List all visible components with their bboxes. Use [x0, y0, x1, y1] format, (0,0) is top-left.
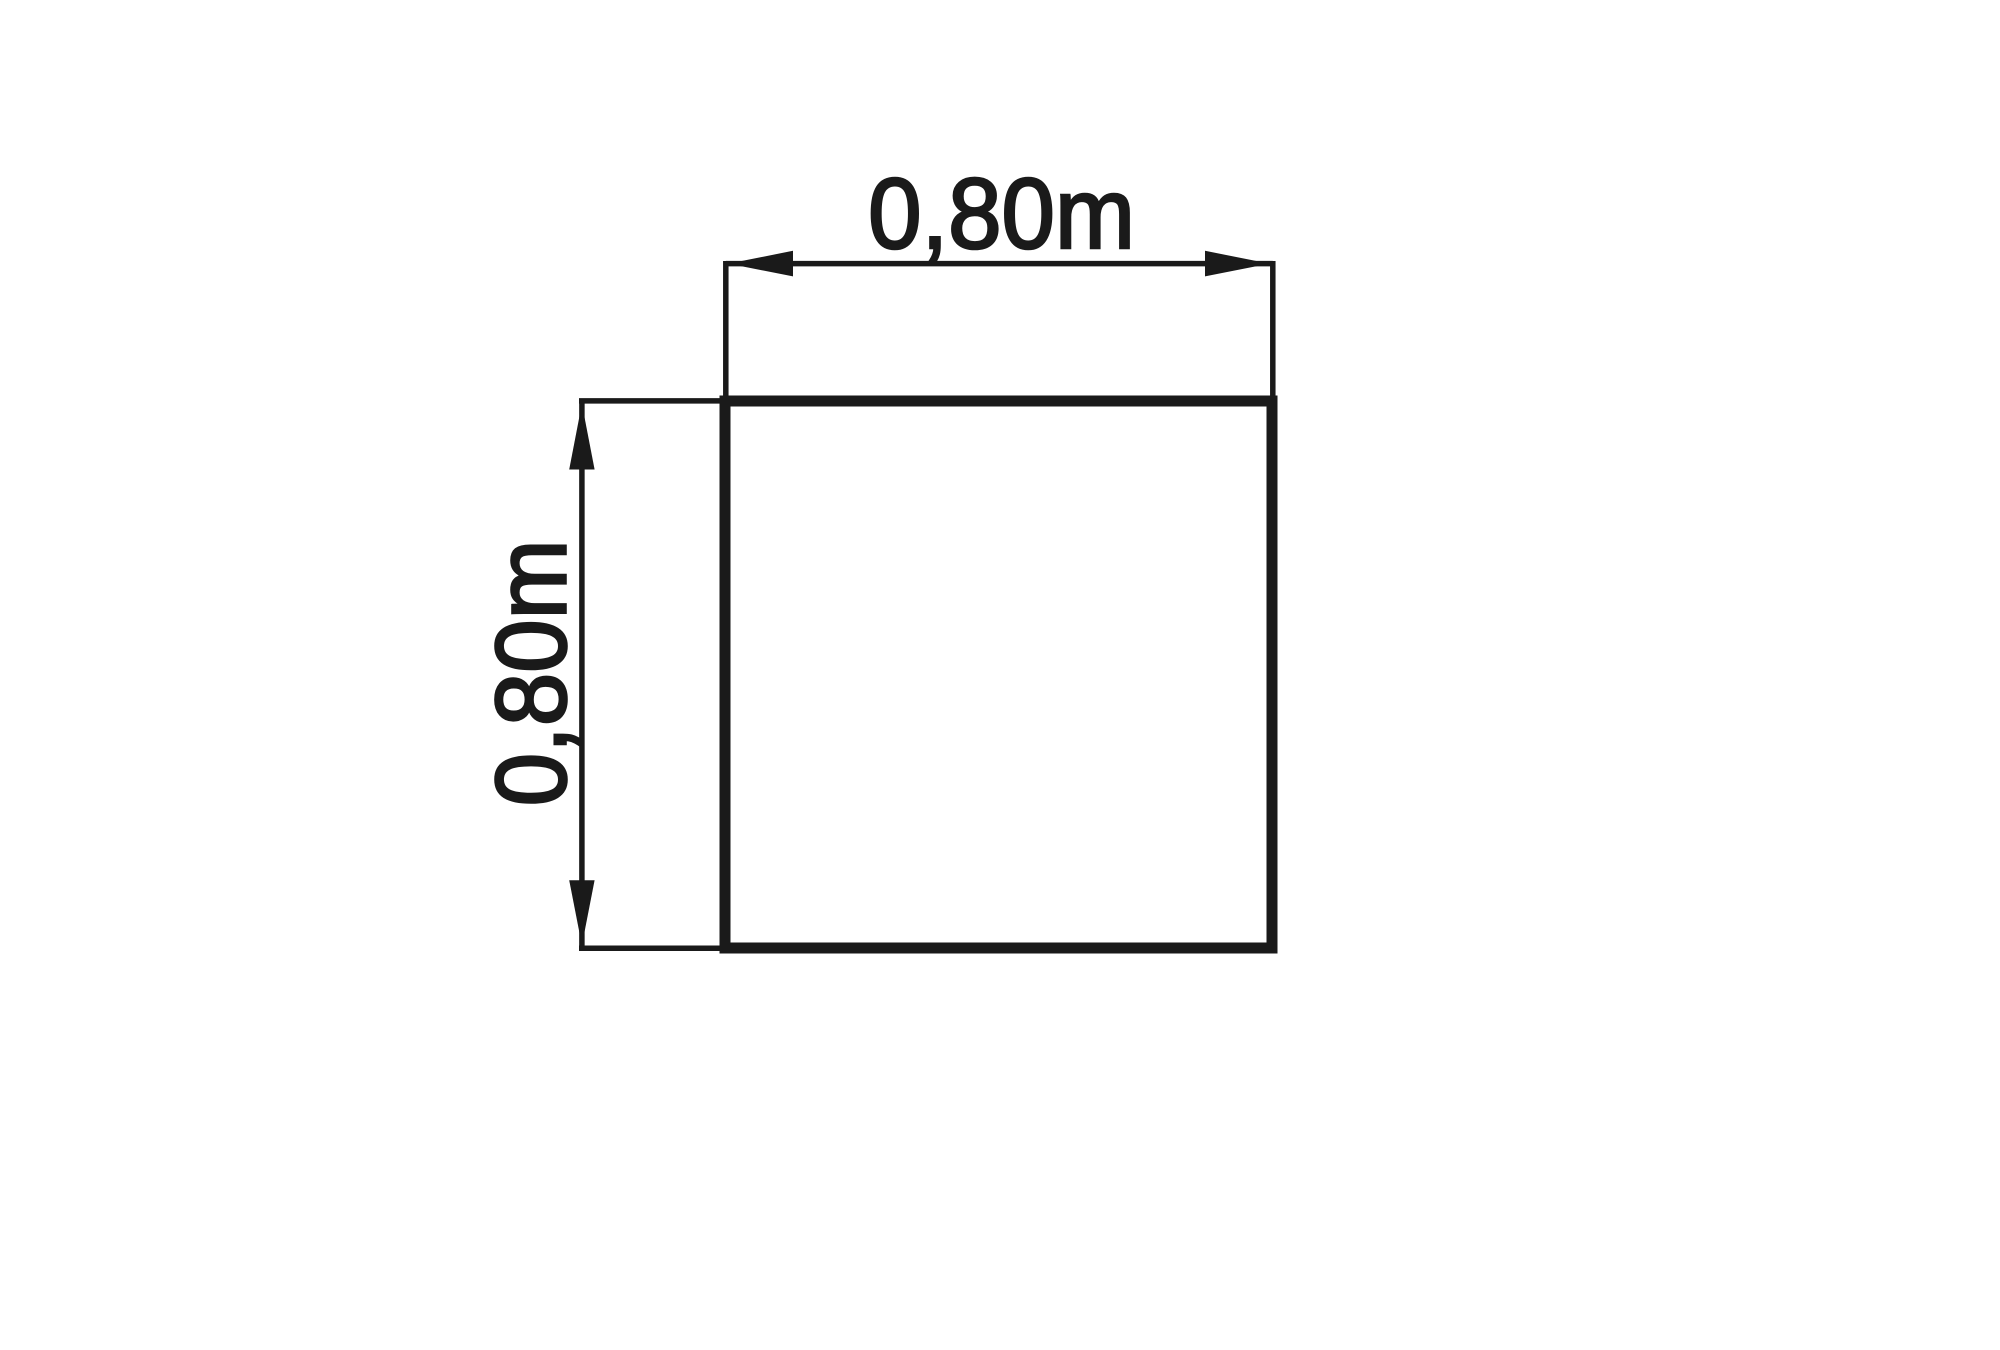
svg-text:0,80m: 0,80m — [475, 539, 587, 806]
svg-text:0,80m: 0,80m — [868, 157, 1135, 269]
